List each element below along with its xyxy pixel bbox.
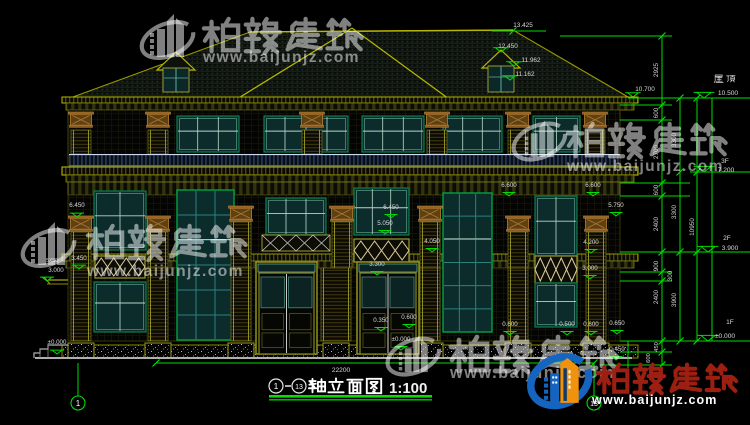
svg-text:13: 13 (295, 384, 303, 391)
svg-text:900: 900 (653, 260, 660, 271)
svg-text:3.450: 3.450 (71, 255, 87, 262)
svg-text:6.450: 6.450 (383, 204, 399, 211)
svg-text:6.600: 6.600 (585, 182, 601, 189)
svg-text:11.162: 11.162 (515, 71, 535, 78)
svg-text:13.425: 13.425 (513, 22, 533, 29)
svg-text:±0.000: ±0.000 (48, 339, 67, 346)
svg-text:11.962: 11.962 (521, 57, 541, 64)
svg-text:1:100: 1:100 (389, 380, 427, 397)
svg-text:0.600: 0.600 (502, 321, 518, 328)
svg-text:6.450: 6.450 (69, 202, 85, 209)
svg-text:www.baijunjz.com: www.baijunjz.com (566, 158, 724, 175)
svg-text:3.300: 3.300 (369, 261, 385, 268)
svg-text:3300: 3300 (671, 204, 678, 219)
svg-text:0.600: 0.600 (401, 314, 417, 321)
svg-text:10950: 10950 (689, 218, 696, 236)
svg-text:5.750: 5.750 (608, 202, 624, 209)
svg-text:10.700: 10.700 (635, 86, 655, 93)
svg-text:2F: 2F (723, 235, 731, 242)
svg-text:10.500: 10.500 (718, 90, 739, 97)
svg-text:2400: 2400 (653, 289, 660, 304)
svg-text:0.600: 0.600 (583, 321, 599, 328)
svg-text:3900: 3900 (671, 292, 678, 307)
svg-text:22200: 22200 (332, 367, 351, 374)
svg-text:4.050: 4.050 (424, 238, 440, 245)
svg-text:2925: 2925 (653, 62, 660, 77)
svg-text:1: 1 (76, 399, 81, 408)
svg-text:4.200: 4.200 (583, 239, 599, 246)
svg-text:600: 600 (646, 353, 652, 363)
svg-text:0.350: 0.350 (373, 317, 389, 324)
svg-text:3.000: 3.000 (48, 267, 64, 274)
svg-text:600: 600 (653, 107, 660, 118)
svg-text:www.baijunjz.com: www.baijunjz.com (591, 393, 717, 407)
svg-text:±0.000: ±0.000 (715, 333, 735, 340)
svg-text:2400: 2400 (653, 216, 660, 231)
svg-text:1: 1 (274, 381, 279, 391)
svg-text:3.000: 3.000 (582, 265, 598, 272)
svg-text:5.050: 5.050 (377, 220, 393, 227)
svg-text:450: 450 (654, 342, 660, 352)
svg-text:www.baijunjz.com: www.baijunjz.com (202, 49, 360, 66)
svg-text:6.600: 6.600 (501, 182, 517, 189)
svg-text:0.500: 0.500 (559, 321, 575, 328)
svg-text:600: 600 (653, 184, 660, 195)
svg-text:300: 300 (667, 270, 674, 281)
svg-text:www.baijunjz.com: www.baijunjz.com (86, 263, 244, 280)
svg-text:12.450: 12.450 (498, 43, 518, 50)
svg-text:0.650: 0.650 (609, 320, 625, 327)
svg-text:3.900: 3.900 (722, 245, 739, 252)
svg-text:1F: 1F (726, 319, 734, 326)
